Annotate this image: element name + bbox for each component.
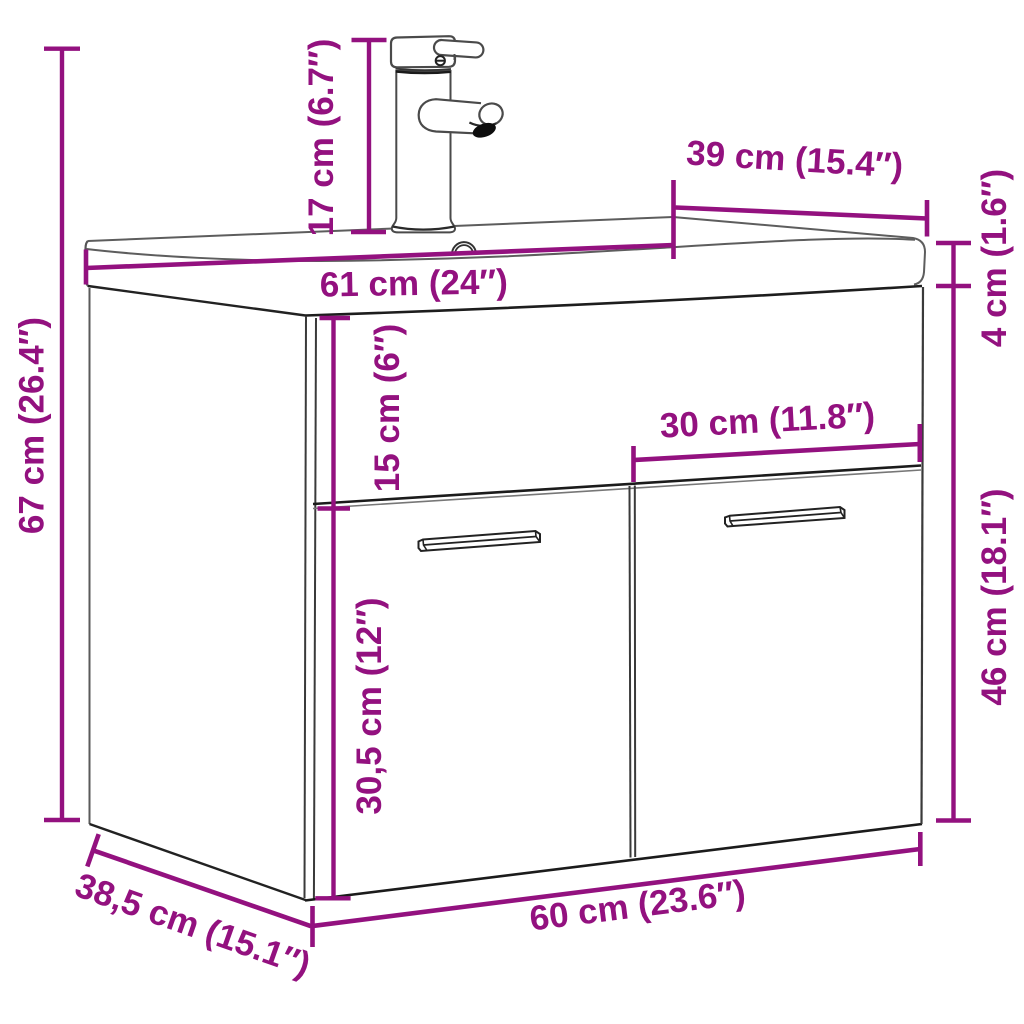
svg-text:30,5 cm (12″): 30,5 cm (12″) [350,597,389,814]
svg-text:17 cm (6.7″): 17 cm (6.7″) [302,39,341,237]
svg-text:4 cm (1.6″): 4 cm (1.6″) [975,169,1014,347]
svg-text:67 cm (26.4″): 67 cm (26.4″) [13,317,52,534]
svg-text:61 cm (24″): 61 cm (24″) [319,262,508,304]
svg-text:15 cm (6″): 15 cm (6″) [368,324,407,493]
svg-text:46 cm (18.1″): 46 cm (18.1″) [975,488,1014,705]
